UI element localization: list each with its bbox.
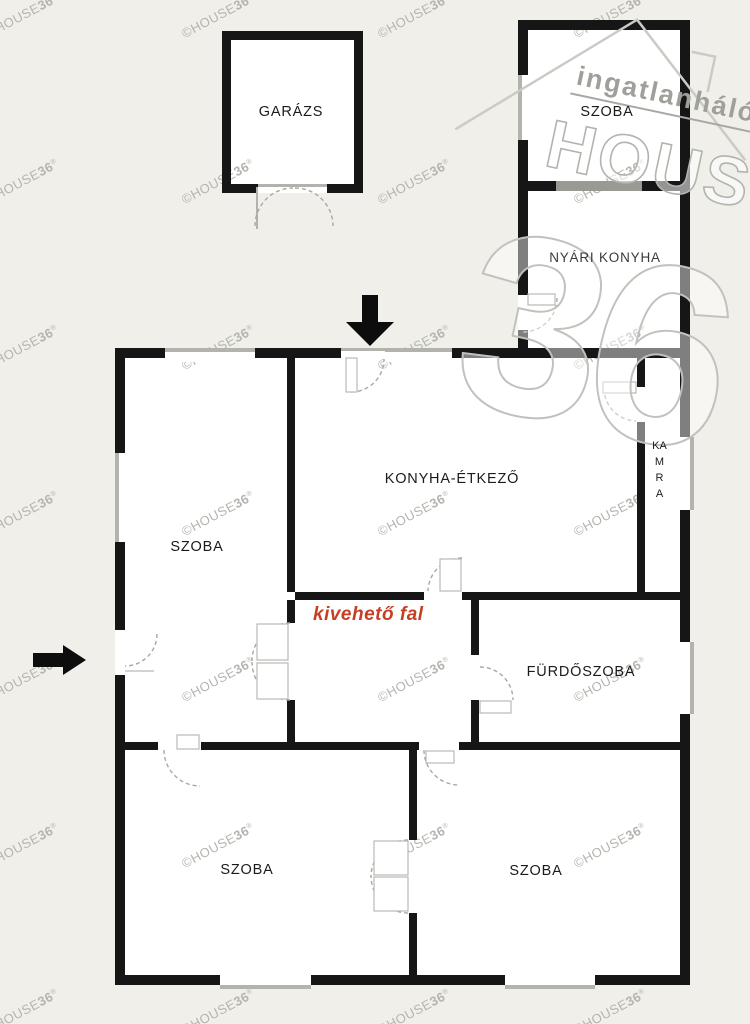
window — [220, 975, 311, 989]
door-opening — [115, 630, 125, 675]
wall-segment — [115, 542, 125, 630]
wall-segment — [222, 31, 231, 193]
wall-segment — [462, 592, 690, 600]
floor-plan-canvas: ©HOUSE36®©HOUSE36®©HOUSE36®©HOUSE36®©HOU… — [0, 0, 750, 1024]
wall-segment — [409, 750, 417, 840]
annotation-removable-wall: kivehető fal — [313, 604, 424, 626]
wall-segment — [222, 31, 363, 40]
watermark-tile: ©HOUSE36® — [0, 0, 61, 41]
wall-segment — [222, 184, 258, 193]
wall-segment — [518, 20, 528, 75]
watermark-tile: ©HOUSE36® — [0, 156, 61, 207]
room-label-garage: GARÁZS — [259, 104, 323, 120]
wall-segment — [471, 600, 479, 655]
wall-segment — [680, 510, 690, 642]
wall-segment — [556, 181, 642, 191]
door-opening — [518, 295, 528, 330]
wall-segment — [518, 20, 690, 30]
wall-segment — [115, 975, 220, 985]
garage-door-lintel — [258, 184, 327, 187]
watermark-tile: ©HOUSE36® — [375, 986, 453, 1024]
room-label-szoba-top: SZOBA — [580, 104, 633, 120]
wall-segment — [595, 975, 690, 985]
wall-segment — [680, 358, 690, 437]
wall-segment — [354, 31, 363, 193]
window — [680, 642, 694, 714]
wall-segment — [459, 742, 690, 750]
window — [165, 348, 255, 362]
wall-segment — [518, 140, 528, 295]
entry-door-lintel — [341, 348, 385, 351]
wall-segment — [311, 975, 505, 985]
wall-segment — [287, 700, 295, 742]
entrance-arrow-down-icon — [346, 295, 394, 346]
garage-door-leaf — [256, 187, 258, 229]
wall-segment — [125, 742, 158, 750]
wall-segment — [637, 422, 645, 592]
room-label-szoba-bottom-right: SZOBA — [509, 863, 562, 879]
watermark-tile: ©HOUSE36® — [375, 0, 453, 41]
room-label-nyari-konyha: NYÁRI KONYHA — [549, 250, 661, 265]
window — [115, 453, 129, 542]
wall-segment — [255, 348, 341, 358]
watermark-tile: ©HOUSE36® — [571, 986, 649, 1024]
wall-segment — [295, 592, 424, 600]
watermark-tile: ©HOUSE36® — [179, 986, 257, 1024]
window — [518, 75, 532, 140]
wall-segment — [637, 358, 645, 387]
wall-segment — [471, 700, 479, 742]
room-label-szoba-left: SZOBA — [170, 539, 223, 555]
window — [680, 437, 694, 510]
room-label-kamra: KAMRA — [652, 438, 667, 502]
watermark-tile: ©HOUSE36® — [0, 488, 61, 539]
watermark-tile: ©HOUSE36® — [375, 156, 453, 207]
wall-segment — [327, 184, 363, 193]
window — [505, 975, 595, 989]
wall-segment — [115, 348, 125, 453]
window — [385, 348, 452, 362]
watermark-tile: ©HOUSE36® — [0, 654, 61, 705]
wall-segment — [201, 742, 419, 750]
room-label-furdoszoba: FÜRDŐSZOBA — [527, 664, 636, 680]
room-label-szoba-bottom-left: SZOBA — [220, 862, 273, 878]
wall-segment — [680, 714, 690, 985]
watermark-tile: ©HOUSE36® — [0, 820, 61, 871]
wall-segment — [287, 600, 295, 623]
watermark-tile: ©HOUSE36® — [0, 322, 61, 373]
watermark-tile: ©HOUSE36® — [0, 986, 61, 1024]
wall-segment — [115, 675, 125, 985]
room-label-konyha-etkezo: KONYHA-ÉTKEZŐ — [385, 471, 519, 487]
wall-segment — [287, 358, 295, 592]
wall-segment — [452, 348, 690, 358]
wall-segment — [409, 913, 417, 975]
